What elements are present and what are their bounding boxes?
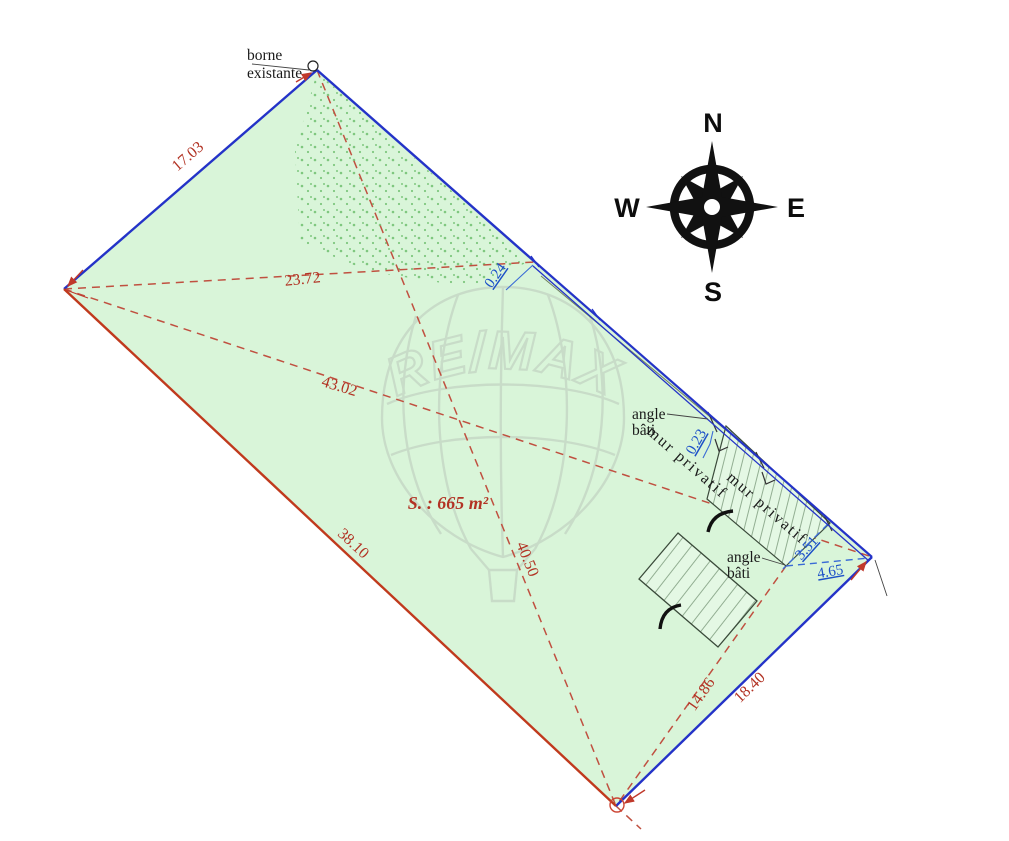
compass-west-label: W xyxy=(614,193,640,223)
compass-north-label: N xyxy=(703,108,723,138)
compass-east-label: E xyxy=(787,193,805,223)
site-plan-page: RE/MAX xyxy=(0,0,1009,841)
site-plan-drawing: RE/MAX xyxy=(0,0,1009,841)
area-label: S. : 665 m² xyxy=(408,493,489,513)
compass-hub xyxy=(704,199,720,215)
compass-south-label: S xyxy=(704,277,722,307)
